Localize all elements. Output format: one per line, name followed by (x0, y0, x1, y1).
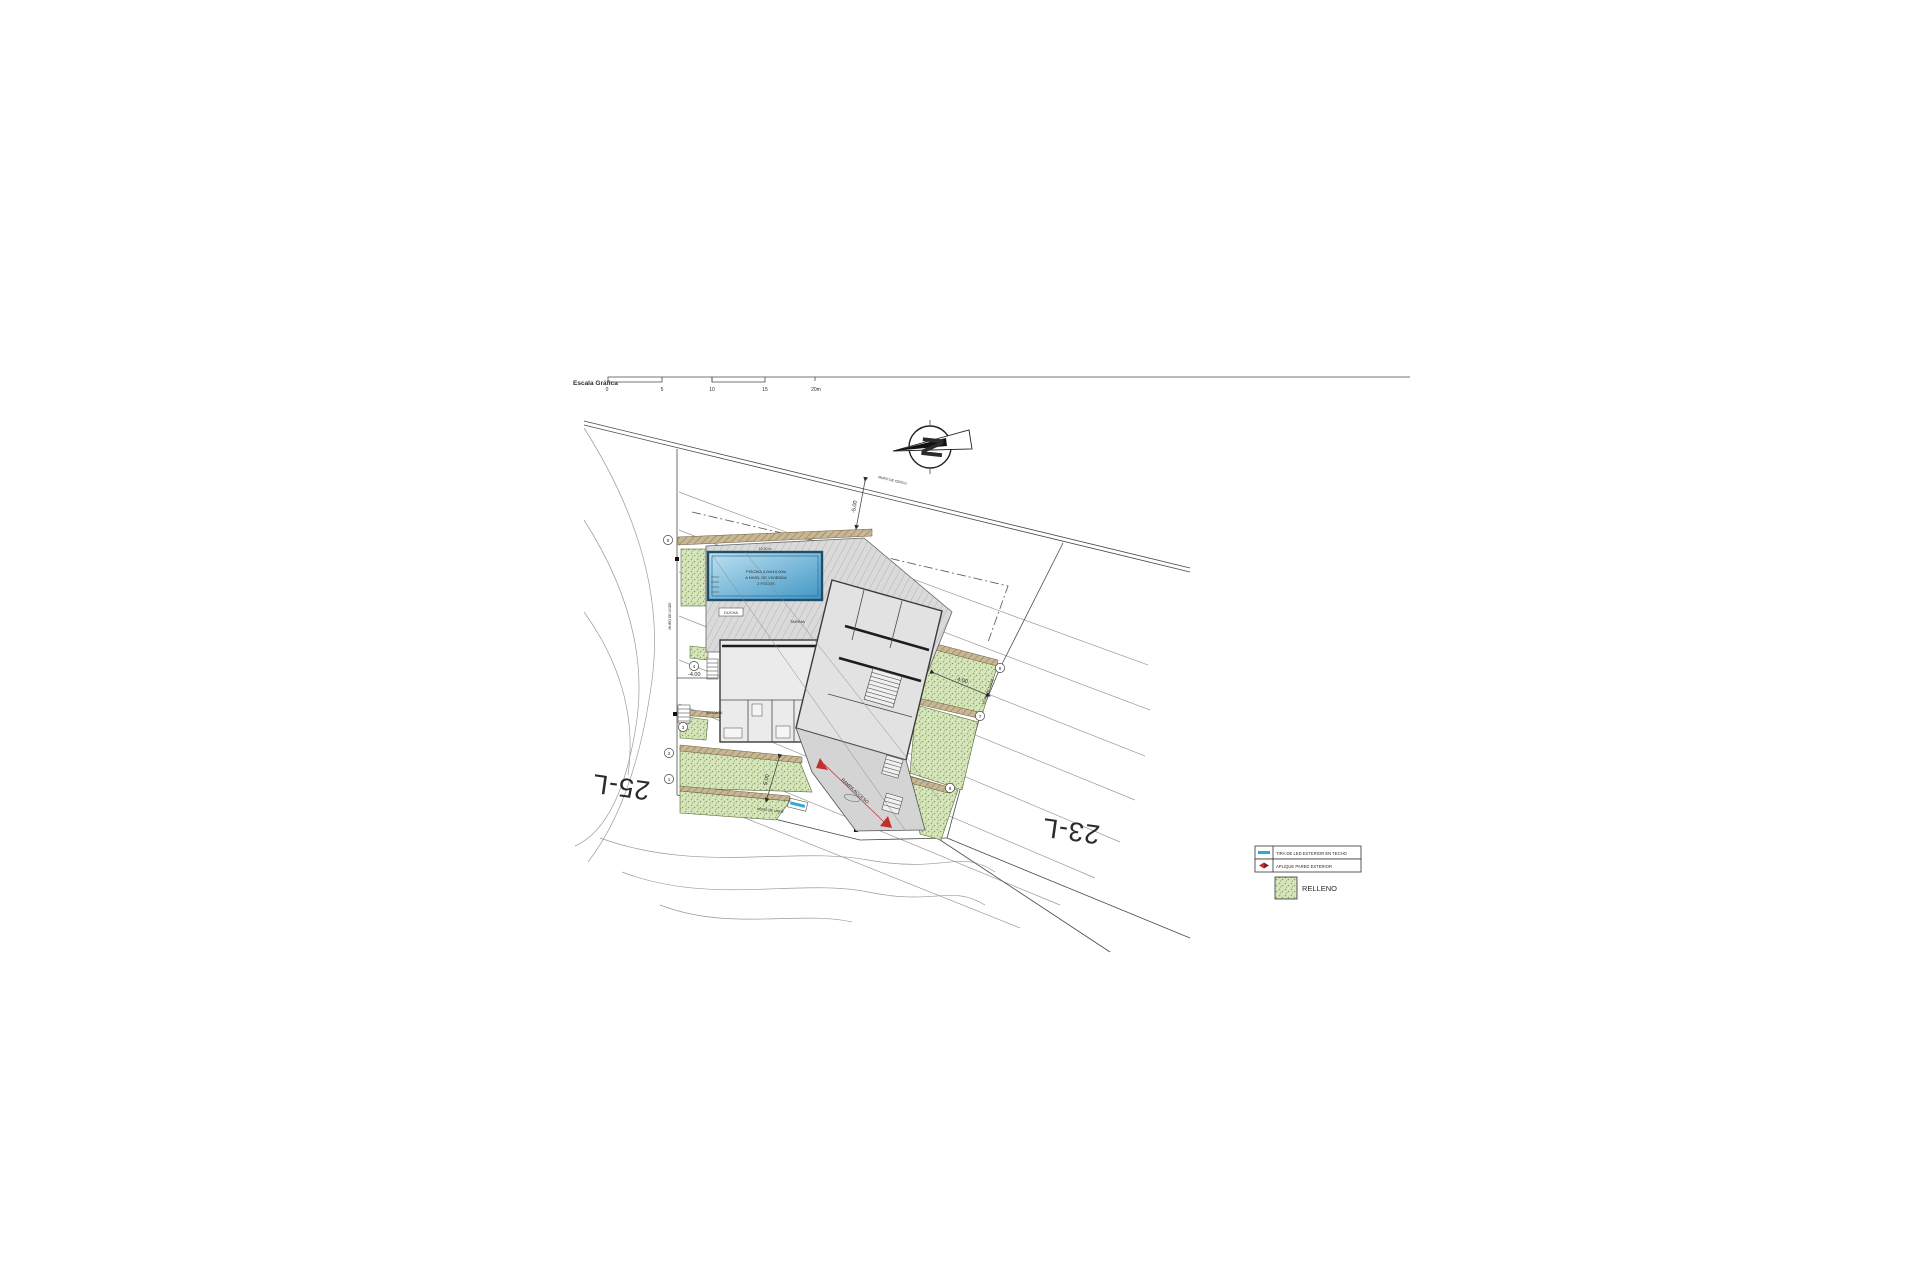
paper-background (0, 0, 1920, 1280)
svg-text:DUCHA: DUCHA (724, 610, 739, 615)
svg-text:3: 3 (682, 725, 685, 730)
svg-text:7: 7 (979, 714, 982, 719)
svg-text:2: 2 (668, 751, 671, 756)
svg-text:1: 1 (668, 777, 671, 782)
svg-text:5: 5 (667, 538, 670, 543)
marker-5: 5 (663, 535, 672, 544)
svg-text:8: 8 (949, 786, 952, 791)
scale-tick-0: 0 (606, 387, 609, 393)
scale-bar-title: Escala Gráfica (573, 380, 618, 387)
marker-4: 4 (689, 661, 698, 670)
scale-tick-20m: 20m (811, 387, 821, 393)
pool-text-line1: PISCINA 4,00x10,00m (746, 569, 787, 574)
marker-8: 8 (945, 783, 954, 792)
svg-text:4: 4 (693, 664, 696, 669)
scale-tick-15: 15 (762, 387, 768, 393)
scale-tick-5: 5 (661, 387, 664, 393)
pool-text-line3: 2 FOCOS (757, 581, 775, 586)
marker-6: 6 (995, 663, 1004, 672)
svg-text:6: 6 (999, 666, 1002, 671)
legend-relleno-label: RELLENO (1302, 884, 1337, 893)
pool-edge-dimension: 10,30 m (759, 547, 772, 551)
legend-item-led-label: TIRA DE LED EXTERIOR EN TECHO (1276, 851, 1348, 856)
site-plan-canvas: Escala Gráfica 0 5 10 15 20m N (0, 0, 1920, 1280)
north-letter: N (914, 435, 949, 460)
marker-1: 1 (664, 774, 673, 783)
legend-relleno-swatch (1275, 877, 1297, 899)
relleno-pool-left (681, 549, 706, 606)
scale-tick-10: 10 (709, 387, 715, 393)
marker-2: 2 (664, 748, 673, 757)
legend-item-sconce-label: APLIQUE PARED EXTERIOR (1276, 864, 1332, 869)
bancada-label: BANCADA (706, 711, 723, 715)
marker-3: 3 (678, 722, 687, 731)
shower-label: DUCHA (719, 608, 743, 616)
marker-7: 7 (975, 711, 984, 720)
deck-label: TARIMA (790, 619, 805, 624)
muro-linde-left-label: MURO DE LINDE (668, 602, 672, 630)
dim-left: -4.00 (688, 672, 701, 678)
